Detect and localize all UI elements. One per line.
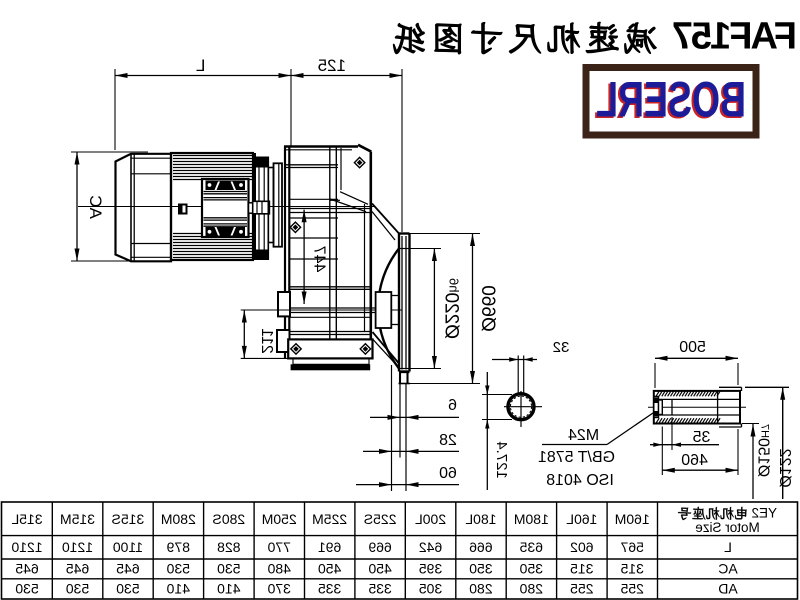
svg-text:335: 335	[368, 581, 392, 597]
svg-text:567: 567	[620, 539, 644, 555]
svg-text:225M: 225M	[312, 511, 347, 527]
svg-text:530: 530	[15, 581, 39, 597]
svg-text:530: 530	[217, 561, 241, 577]
svg-text:32: 32	[553, 339, 570, 356]
svg-text:335: 335	[318, 581, 342, 597]
svg-text:GB/T 5781: GB/T 5781	[538, 449, 615, 466]
svg-text:635: 635	[519, 539, 543, 555]
svg-text:180L: 180L	[465, 511, 496, 527]
svg-text:645: 645	[15, 561, 39, 577]
svg-text:315: 315	[570, 561, 594, 577]
svg-text:L: L	[724, 539, 732, 555]
svg-text:Motor Size: Motor Size	[695, 520, 760, 535]
svg-text:L: L	[196, 56, 205, 75]
svg-text:691: 691	[318, 539, 342, 555]
svg-text:Ø660: Ø660	[477, 285, 498, 331]
svg-text:602: 602	[570, 539, 594, 555]
svg-text:669: 669	[368, 539, 392, 555]
svg-text:828: 828	[217, 539, 241, 555]
svg-text:305: 305	[419, 581, 443, 597]
svg-text:450: 450	[368, 561, 392, 577]
svg-text:60: 60	[439, 465, 457, 482]
svg-text:645: 645	[66, 561, 90, 577]
svg-text:1210: 1210	[11, 539, 42, 555]
svg-text:642: 642	[419, 539, 443, 555]
svg-text:666: 666	[469, 539, 493, 555]
svg-text:530: 530	[116, 581, 140, 597]
svg-text:645: 645	[116, 561, 140, 577]
svg-text:6: 6	[448, 397, 457, 414]
svg-text:315: 315	[620, 561, 644, 577]
svg-text:35: 35	[693, 429, 711, 446]
svg-text:200L: 200L	[415, 511, 446, 527]
svg-text:395: 395	[419, 561, 443, 577]
svg-text:211: 211	[258, 328, 275, 354]
svg-text:280: 280	[519, 581, 543, 597]
svg-text:1210: 1210	[62, 539, 93, 555]
svg-text:1100: 1100	[113, 539, 143, 555]
svg-text:370: 370	[267, 581, 291, 597]
svg-text:180M: 180M	[514, 511, 549, 527]
svg-text:410: 410	[166, 581, 190, 597]
svg-text:480: 480	[267, 561, 291, 577]
svg-text:315L: 315L	[11, 511, 42, 527]
svg-text:FAF157: FAF157	[673, 16, 797, 58]
svg-text:AC: AC	[86, 195, 105, 219]
svg-text:530: 530	[66, 581, 90, 597]
svg-text:315S: 315S	[112, 511, 145, 527]
svg-text:ISO 4018: ISO 4018	[546, 472, 614, 489]
svg-text:450: 450	[318, 561, 342, 577]
svg-text:350: 350	[469, 561, 493, 577]
svg-text:447: 447	[311, 246, 328, 273]
svg-text:460: 460	[681, 452, 708, 469]
svg-text:160L: 160L	[566, 511, 597, 527]
svg-text:28: 28	[439, 432, 457, 449]
svg-text:410: 410	[217, 581, 241, 597]
svg-text:350: 350	[519, 561, 543, 577]
svg-text:280M: 280M	[161, 511, 196, 527]
svg-text:530: 530	[166, 561, 190, 577]
svg-text:280S: 280S	[212, 511, 245, 527]
svg-text:225S: 225S	[364, 511, 397, 527]
svg-text:M24: M24	[568, 427, 599, 444]
svg-text:315M: 315M	[60, 511, 95, 527]
svg-text:AD: AD	[718, 581, 737, 597]
svg-text:Ø122: Ø122	[776, 448, 793, 487]
svg-text:280: 280	[469, 581, 493, 597]
svg-text:255: 255	[570, 581, 594, 597]
svg-text:125: 125	[318, 56, 346, 75]
svg-text:770: 770	[267, 539, 291, 555]
svg-text:YE2: YE2	[751, 506, 777, 521]
svg-text:255: 255	[620, 581, 644, 597]
svg-text:879: 879	[166, 539, 190, 555]
svg-text:250M: 250M	[262, 511, 297, 527]
svg-text:500: 500	[679, 339, 706, 356]
svg-text:BOSERL: BOSERL	[596, 72, 746, 128]
svg-text:160M: 160M	[615, 511, 650, 527]
svg-text:127.4: 127.4	[493, 441, 510, 479]
svg-text:AC: AC	[718, 561, 737, 577]
